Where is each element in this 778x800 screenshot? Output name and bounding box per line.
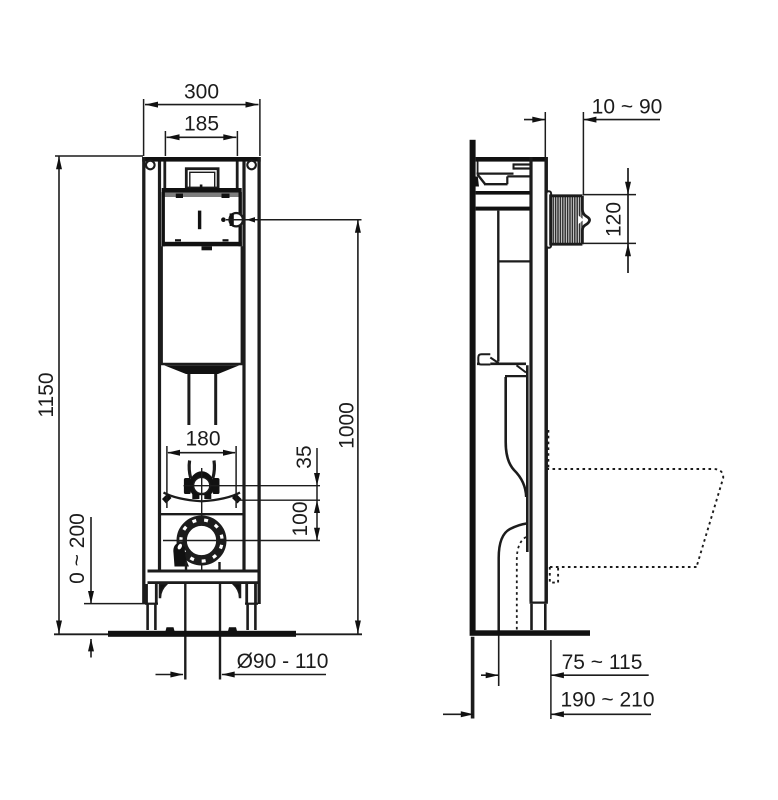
- svg-text:190 ~ 210: 190 ~ 210: [560, 689, 654, 712]
- svg-text:1150: 1150: [35, 372, 58, 417]
- svg-text:120: 120: [603, 202, 626, 237]
- svg-text:100: 100: [289, 501, 312, 536]
- svg-text:75 ~ 115: 75 ~ 115: [562, 651, 643, 674]
- svg-text:180: 180: [185, 428, 220, 451]
- svg-text:35: 35: [293, 445, 316, 468]
- svg-text:1000: 1000: [336, 402, 359, 449]
- svg-text:0 ~ 200: 0 ~ 200: [66, 513, 89, 584]
- svg-text:185: 185: [184, 113, 219, 136]
- svg-text:Ø90 - 110: Ø90 - 110: [237, 650, 329, 673]
- svg-text:10 ~ 90: 10 ~ 90: [592, 96, 663, 119]
- svg-text:300: 300: [184, 81, 219, 104]
